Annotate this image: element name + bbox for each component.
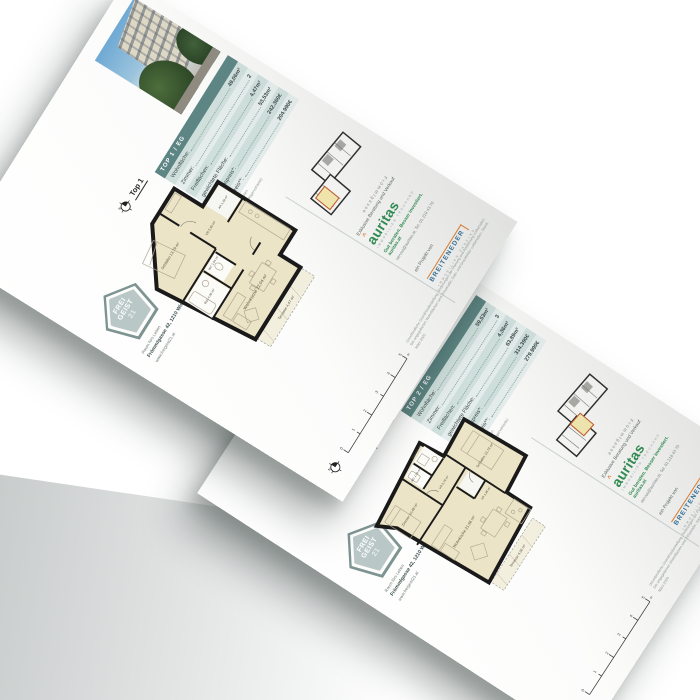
mockup-scene: TOP 2 / EG Wohnfläche:59,53m² Zimmer:3 F… xyxy=(0,0,700,700)
svg-text:1: 1 xyxy=(350,427,356,432)
north-compass-icon: N xyxy=(325,457,346,478)
svg-text:3: 3 xyxy=(616,632,622,637)
svg-text:1: 1 xyxy=(592,669,598,674)
svg-text:m: m xyxy=(649,595,654,600)
svg-text:3: 3 xyxy=(374,389,380,394)
svg-text:m: m xyxy=(406,352,411,357)
row-value: 2 xyxy=(247,74,254,80)
row-value: 3 xyxy=(494,314,501,320)
